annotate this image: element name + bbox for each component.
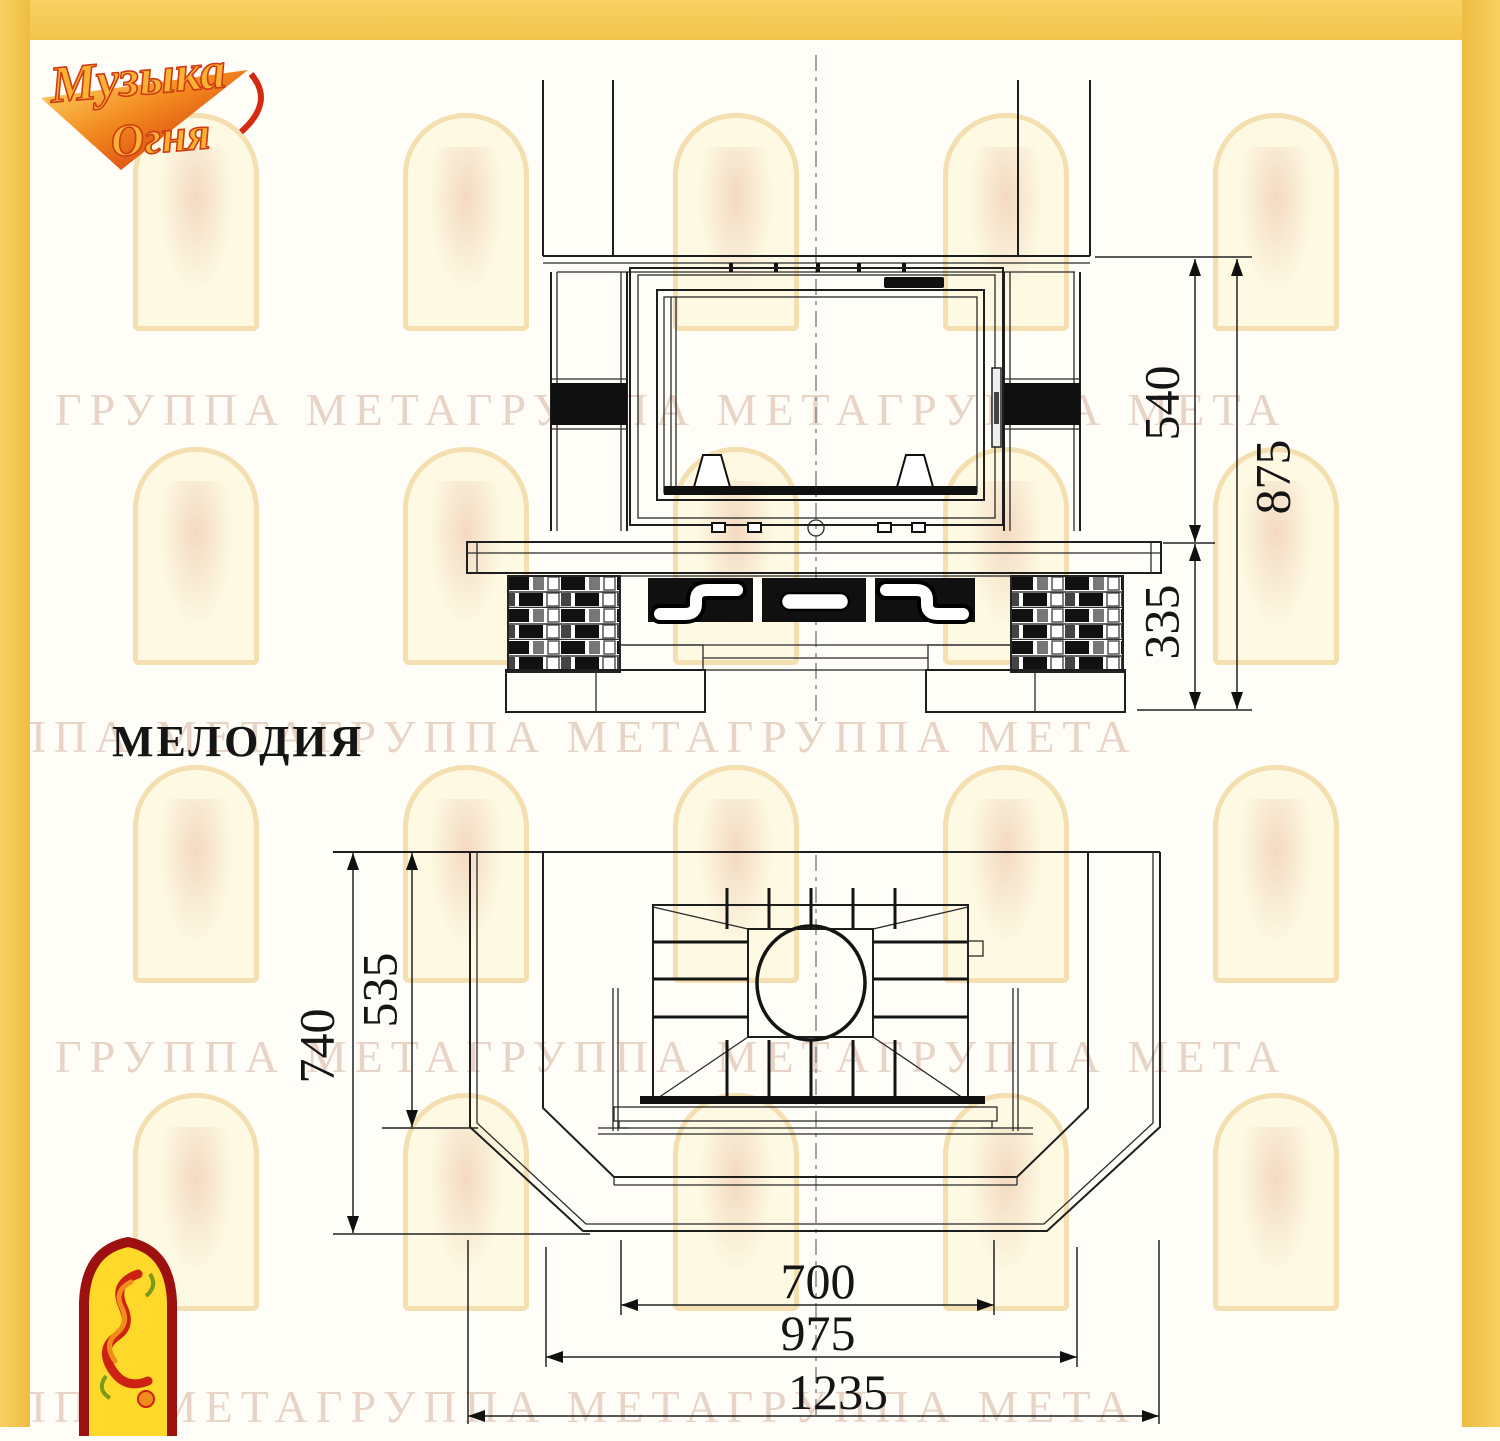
center-pill-ornament — [781, 593, 849, 610]
model-title: МЕЛОДИЯ — [112, 716, 364, 767]
firebird-emblem — [76, 1236, 180, 1436]
flue-box — [748, 929, 873, 1037]
left-pillar — [551, 272, 627, 531]
left-mosaic-pillar — [508, 576, 620, 672]
page: { "logo": { "line1": "Музыка", "line2": … — [0, 0, 1500, 1427]
page-border-top — [0, 0, 1500, 40]
side-tab — [968, 941, 983, 956]
firebox-door — [630, 268, 1003, 525]
front-dimensions: 540 875 335 — [1095, 257, 1300, 710]
page-border-left — [0, 0, 30, 1427]
logo-word-2: Огня — [109, 107, 213, 166]
brand-mark — [884, 277, 944, 288]
left-andiron — [694, 455, 730, 487]
mantel-shelf — [467, 542, 1161, 573]
flame-stroke-icon — [241, 74, 261, 132]
right-pillar — [1004, 272, 1080, 531]
fireplace-technical-drawing: 540 875 335 — [0, 0, 1500, 1427]
dimension-335: 335 — [1133, 585, 1189, 660]
front-view: 540 875 335 — [467, 55, 1300, 723]
right-pillar-black-band — [1004, 383, 1080, 425]
dimension-1235: 1235 — [788, 1364, 888, 1420]
firebox-plan-sill — [640, 1096, 985, 1104]
dimension-740: 740 — [288, 1009, 344, 1084]
left-plinth — [506, 670, 705, 712]
emblem-arch — [84, 1242, 172, 1436]
door-sill — [664, 486, 977, 495]
dimension-975: 975 — [781, 1305, 856, 1361]
door-handle-grip — [994, 392, 999, 424]
emblem-dot — [138, 1391, 154, 1407]
right-mosaic-pillar — [1011, 576, 1123, 672]
hearth-front-plate — [614, 1107, 997, 1121]
right-plinth — [926, 670, 1125, 712]
dimension-540: 540 — [1133, 366, 1189, 441]
plan-view: 740 535 700 975 1235 — [288, 852, 1160, 1424]
plan-dimensions: 740 535 700 975 1235 — [288, 853, 1159, 1424]
vent-row — [712, 520, 925, 536]
page-border-right — [1462, 0, 1500, 1427]
dimension-700: 700 — [781, 1253, 856, 1309]
right-andiron — [897, 455, 933, 487]
company-logo: Музыка Огня — [26, 40, 286, 180]
dimension-535: 535 — [351, 953, 407, 1028]
left-pillar-black-band — [551, 383, 627, 425]
dimension-875: 875 — [1244, 440, 1300, 515]
flue-collar-circle — [757, 926, 865, 1040]
